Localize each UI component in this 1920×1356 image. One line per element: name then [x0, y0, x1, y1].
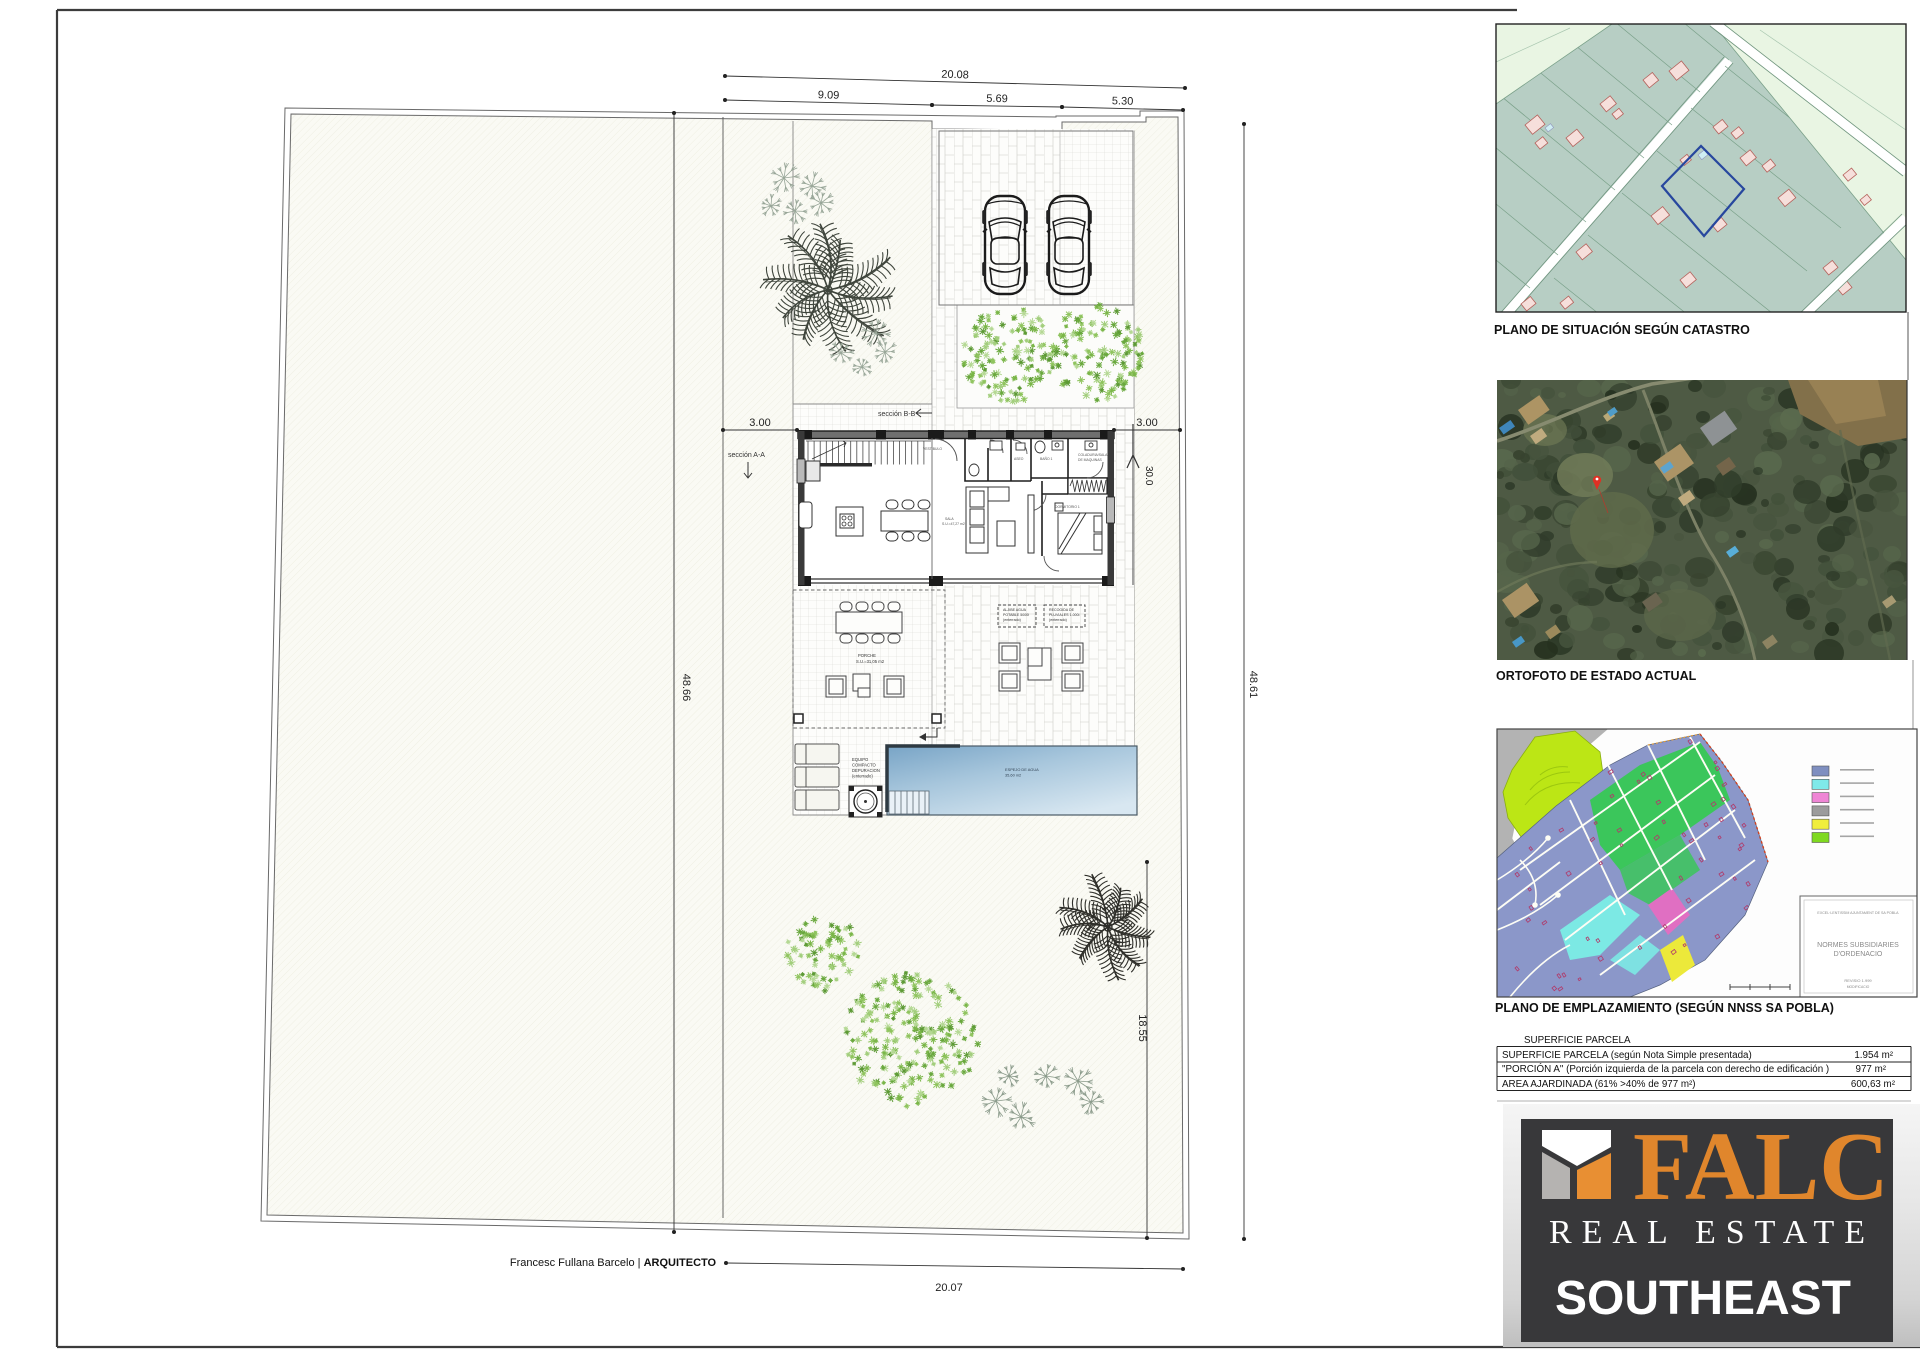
svg-text:48.66: 48.66: [680, 674, 692, 702]
svg-text:1.954 m²: 1.954 m²: [1854, 1050, 1893, 1061]
svg-text:S.U.=47,27 m2: S.U.=47,27 m2: [942, 522, 965, 526]
svg-text:5.69: 5.69: [986, 93, 1008, 105]
svg-text:"PORCIÓN A" (Porción izquierd: "PORCIÓN A" (Porción izquierda de la par…: [1502, 1064, 1829, 1075]
svg-text:20.08: 20.08: [941, 69, 969, 82]
svg-text:AREA AJARDINADA (61% >40% de 9: AREA AJARDINADA (61% >40% de 977 m²): [1502, 1079, 1696, 1090]
svg-text:48.61: 48.61: [1247, 671, 1259, 699]
svg-text:ESPEJO DE AGUA: ESPEJO DE AGUA: [1005, 767, 1039, 772]
svg-text:ORTOFOTO DE ESTADO ACTUAL: ORTOFOTO DE ESTADO ACTUAL: [1496, 669, 1697, 683]
svg-text:PLUVIALES 1.000l: PLUVIALES 1.000l: [1049, 613, 1080, 617]
svg-text:3.00: 3.00: [749, 417, 770, 429]
svg-text:PLANO DE SITUACIÓN SEGÚN CATAS: PLANO DE SITUACIÓN SEGÚN CATASTRO: [1494, 322, 1750, 337]
svg-text:BAÑO 1: BAÑO 1: [1040, 456, 1053, 461]
svg-text:3.00: 3.00: [1136, 417, 1157, 429]
svg-text:(enterrado): (enterrado): [1003, 618, 1021, 622]
svg-text:20.07: 20.07: [935, 1282, 963, 1294]
svg-text:ALJIBE AGUA: ALJIBE AGUA: [1003, 608, 1027, 612]
svg-text:977 m²: 977 m²: [1856, 1064, 1887, 1075]
svg-text:COMPACTO: COMPACTO: [852, 763, 877, 768]
svg-text:SALA: SALA: [945, 517, 954, 521]
svg-text:D'ORDENACIO: D'ORDENACIO: [1834, 951, 1883, 958]
svg-text:S.U.=31,05 m2: S.U.=31,05 m2: [856, 659, 885, 664]
svg-text:ASEO: ASEO: [1014, 457, 1024, 461]
svg-text:PORCHE: PORCHE: [858, 653, 876, 658]
svg-text:sección A-A: sección A-A: [728, 452, 765, 459]
svg-text:30.0: 30.0: [1143, 466, 1154, 486]
svg-text:NORMES SUBSIDIARIES: NORMES SUBSIDIARIES: [1817, 942, 1899, 949]
svg-text:DE MAQUINAS: DE MAQUINAS: [1078, 458, 1102, 462]
svg-text:DORMITORIO 1: DORMITORIO 1: [1055, 505, 1080, 509]
svg-text:POTABLE 5000l: POTABLE 5000l: [1003, 613, 1029, 617]
svg-text:REAL ESTATE: REAL ESTATE: [1549, 1214, 1875, 1251]
svg-text:600,63 m²: 600,63 m²: [1851, 1079, 1896, 1090]
svg-text:5.30: 5.30: [1112, 95, 1134, 108]
svg-text:MODIFICACIO: MODIFICACIO: [1847, 985, 1870, 989]
svg-text:FALC: FALC: [1633, 1113, 1889, 1220]
svg-text:EXCEL·LENTISSIM AJUNTAMENT DE: EXCEL·LENTISSIM AJUNTAMENT DE SA POBLA: [1817, 911, 1899, 915]
svg-text:VESTIBULO: VESTIBULO: [923, 447, 942, 451]
svg-text:SOUTHEAST: SOUTHEAST: [1555, 1272, 1851, 1325]
svg-text:SUPERFICIE PARCELA: SUPERFICIE PARCELA: [1524, 1035, 1631, 1046]
svg-text:REVISIO 1.999: REVISIO 1.999: [1844, 978, 1872, 983]
svg-text:EQUIPO: EQUIPO: [852, 757, 869, 762]
svg-text:RECOGIDA DE: RECOGIDA DE: [1049, 608, 1075, 612]
svg-text:9.09: 9.09: [818, 89, 840, 102]
svg-text:COLADURIA/SALA: COLADURIA/SALA: [1078, 453, 1108, 457]
svg-text:sección B-B: sección B-B: [878, 411, 916, 418]
svg-text:SUPERFICIE PARCELA (según Nota: SUPERFICIE PARCELA (según Nota Simple pr…: [1502, 1050, 1752, 1061]
svg-text:35,60 m2: 35,60 m2: [1005, 773, 1021, 778]
svg-text:DEPURACION: DEPURACION: [852, 768, 880, 773]
svg-text:18.55: 18.55: [1136, 1014, 1148, 1042]
svg-text:PLANO DE EMPLAZAMIENTO (SEGÚN: PLANO DE EMPLAZAMIENTO (SEGÚN NNSS SA PO…: [1495, 1000, 1834, 1015]
svg-text:(enterrado): (enterrado): [1049, 618, 1067, 622]
svg-text:(enterrado): (enterrado): [852, 774, 873, 779]
svg-text:Francesc Fullana Barcelo | ARQ: Francesc Fullana Barcelo | ARQUITECTO: [510, 1257, 717, 1269]
